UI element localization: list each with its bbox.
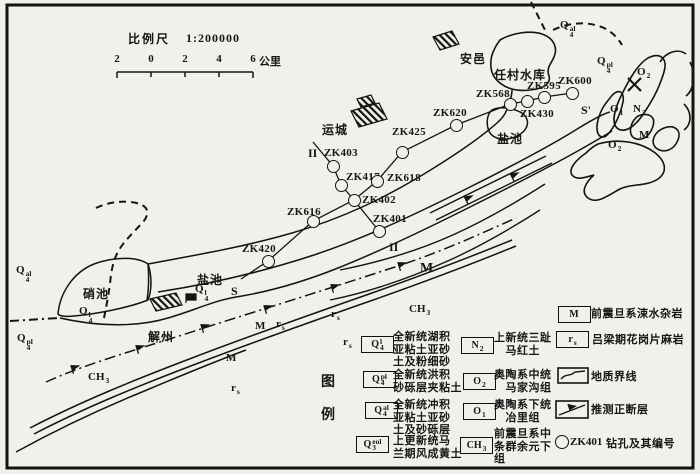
unit-label: CH3	[409, 291, 430, 316]
unit-label: CH3	[88, 359, 109, 384]
unit-label: M	[226, 340, 237, 364]
unit-label: O2	[637, 54, 650, 79]
unit-label: Qpl4	[17, 320, 33, 350]
unit-label: rs	[343, 324, 352, 349]
unit-label: M	[420, 245, 434, 277]
scale-label: 比例尺	[128, 30, 170, 47]
scale-ratio: 1:200000	[186, 31, 240, 46]
legend-text: 奥陶系下统 冶里组	[494, 399, 552, 424]
legend-text: 前震旦系中 条群余元下 组	[494, 428, 552, 466]
legend-symbol-box: Ql4	[361, 336, 394, 353]
legend-text: 前震旦系涑水杂岩	[591, 308, 683, 321]
borehole-circle-icon	[538, 91, 551, 104]
geological-sketch-map: 比例尺 1:200000 2 0 2 4 6 公里 安邑 任村水库 运城 盐池 …	[0, 0, 700, 474]
unit-label: M	[255, 308, 266, 332]
section-label: S'	[581, 88, 591, 118]
anyi-town-icon	[433, 31, 459, 50]
scale-tick: 4	[216, 53, 222, 65]
unit-label: O2	[608, 127, 621, 152]
unit-label: rs	[231, 370, 240, 395]
legend-symbol-box: O1	[463, 403, 496, 420]
borehole-label: ZK616	[287, 206, 321, 218]
borehole-label: ZK403	[324, 147, 358, 159]
scale-tick: 0	[148, 53, 154, 65]
borehole-label: ZK402	[362, 194, 396, 206]
legend-text: 钻孔及其编号	[606, 438, 675, 451]
borehole-label: ZK595	[527, 80, 561, 92]
legend-symbol-box: Qpl4	[363, 371, 396, 388]
place-label: 解州	[148, 314, 174, 345]
map-artwork	[0, 0, 700, 474]
scale-tick: 2	[114, 53, 120, 65]
inferred-normal-fault-icon	[555, 400, 589, 424]
unit-label: Qpl4	[597, 43, 613, 73]
borehole-circle-icon	[396, 146, 409, 159]
xiezhou-town-icon	[150, 293, 182, 311]
borehole-circle-icon	[262, 255, 275, 268]
legend-symbol-box: CH3	[460, 437, 493, 454]
section-label: S	[231, 269, 238, 299]
scale-unit: 公里	[259, 53, 281, 69]
legend-text: 全新统湖积 亚粘土亚砂 土及粉细砂	[393, 331, 451, 369]
legend-title-char: 例	[321, 404, 335, 424]
borehole-circle-icon	[521, 95, 534, 108]
legend-text: 全新统洪积 砂砾层夹粘土	[393, 369, 462, 394]
unit-label: N2	[633, 91, 646, 116]
legend-symbol-box: rs	[556, 331, 589, 348]
borehole-circle-icon	[348, 194, 361, 207]
borehole-label: ZK430	[520, 108, 554, 120]
unit-label: Qal4	[560, 7, 575, 37]
borehole-circle-icon	[566, 87, 579, 100]
scale-bar-line	[117, 72, 253, 78]
borehole-circle-icon	[327, 160, 340, 173]
east-outcrops	[571, 51, 694, 200]
unit-label: Ql4	[195, 271, 208, 301]
borehole-label: ZK425	[392, 126, 426, 138]
scale-tick: 2	[182, 53, 188, 65]
geological-boundary-icon	[557, 367, 589, 389]
legend-text: 推测正断层	[591, 404, 649, 417]
legend-text: 吕梁期花岗片麻岩	[592, 334, 684, 347]
legend-symbol-box: N2	[461, 337, 494, 354]
borehole-legend-icon: ZK401	[555, 435, 602, 449]
unit-label: Ql4	[79, 293, 92, 323]
borehole-circle-icon	[450, 119, 463, 132]
place-label: 盐池	[497, 116, 523, 147]
unit-label: rs	[276, 306, 285, 331]
inner-fault-corridor	[430, 156, 552, 220]
legend-symbol-box: O2	[463, 373, 496, 390]
legend-text: 上新统三趾 马红土	[494, 332, 552, 357]
legend-text: 奥陶系中统 马家沟组	[494, 369, 552, 394]
legend-text: 地质界线	[591, 371, 637, 384]
borehole-label: ZK620	[433, 107, 467, 119]
section-label: II	[308, 131, 317, 161]
borehole-circle-icon	[373, 225, 386, 238]
place-label: 运城	[322, 107, 348, 138]
legend-text: 上更新统马 兰期风成黄土	[393, 435, 462, 460]
unit-label: M	[639, 117, 650, 141]
fault-cross-mark	[628, 78, 641, 91]
section-label: II	[389, 225, 398, 255]
legend-title-char: 图	[321, 371, 335, 391]
borehole-label: ZK401	[373, 213, 407, 225]
scale-tick: 6	[250, 53, 256, 65]
borehole-label: ZK600	[558, 75, 592, 87]
legend-text: 全新统冲积 亚粘土亚砂 土及砂砾层	[393, 399, 451, 437]
legend-symbol-box: M	[558, 306, 591, 323]
dashed-boundary	[96, 2, 622, 318]
place-label: 任村水库	[494, 52, 546, 83]
unit-label: O1	[610, 91, 623, 116]
unit-label: rs	[331, 296, 340, 321]
legend-symbol-box: Qeol3	[356, 436, 389, 453]
borehole-circle-icon	[371, 175, 384, 188]
unit-label: Qal4	[16, 252, 31, 282]
borehole-label: ZK618	[387, 172, 421, 184]
place-label: 安邑	[460, 36, 486, 67]
yuncheng-town-icon	[351, 103, 387, 127]
borehole-label: ZK568	[476, 88, 510, 100]
borehole-label: ZK420	[242, 243, 276, 255]
